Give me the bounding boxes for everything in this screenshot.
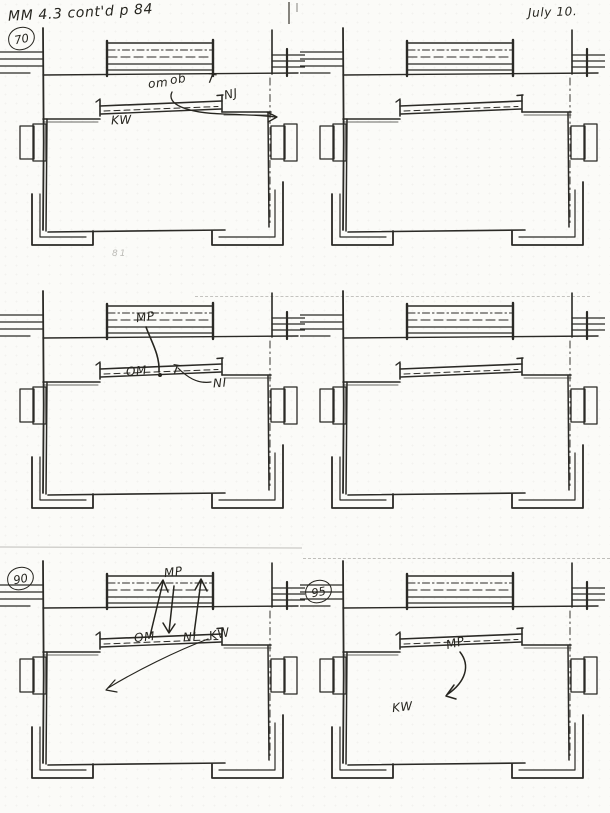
door-bracket-bottom-left [32, 457, 93, 508]
door-bracket-bottom-left [32, 727, 93, 778]
left-wall [0, 28, 44, 230]
platform-table [407, 573, 513, 609]
door-jamb-left [20, 387, 46, 424]
fold-mark [296, 3, 298, 12]
platform-table [107, 40, 213, 76]
door-bracket-bottom-right [212, 715, 283, 778]
character-label-om: OM [133, 630, 155, 644]
fold-mark [288, 2, 290, 24]
room-outline [43, 112, 271, 232]
left-wall [0, 561, 44, 763]
door-jamb-right [571, 124, 597, 161]
blocking-panel-1: 70 om ob T NJ KW [0, 22, 305, 280]
bench [96, 358, 223, 379]
bench [396, 358, 523, 379]
door-jamb-left [320, 657, 346, 694]
door-jamb-right [271, 387, 297, 424]
upstage-wall-line [43, 336, 298, 338]
door-jamb-left [20, 124, 46, 161]
character-label-t: T [171, 363, 181, 377]
floor-plan-sketch [0, 22, 305, 280]
floor-plan-sketch [0, 285, 305, 543]
door-bracket-bottom-left [332, 194, 393, 245]
scanned-blocking-page: { "page": { "description": "Scanned hand… [0, 0, 610, 800]
platform-table [107, 303, 213, 339]
left-wall [300, 291, 344, 493]
upstage-wall-line [343, 336, 598, 338]
character-label-mp: MP [135, 310, 155, 324]
blocking-panel-5: 90 MP OM NI KW [0, 555, 305, 813]
bench [96, 628, 223, 649]
upstage-wall-line [343, 73, 598, 75]
character-label-ni: NI [183, 631, 198, 644]
door-jamb-left [320, 387, 346, 424]
character-label-om: om [147, 76, 168, 90]
character-label-om: OM [126, 364, 148, 378]
floor-plan-sketch [300, 22, 605, 280]
door-jamb-left [20, 657, 46, 694]
sheet: MM 4.3 cont'd p 84 July 10. 81 [0, 0, 610, 800]
room-outline [343, 375, 571, 495]
door-bracket-bottom-right [212, 182, 283, 245]
door-bracket-bottom-right [212, 445, 283, 508]
door-jamb-right [271, 124, 297, 161]
upstage-wall-line [43, 606, 298, 608]
character-label-ni: NI [213, 377, 228, 390]
character-label-mp: MP [163, 565, 183, 579]
room-outline [343, 112, 571, 232]
left-wall [0, 291, 44, 493]
upstage-wall-line [343, 606, 598, 608]
character-label-nj: NJ [223, 87, 239, 102]
blocking-panel-6: 95 MP KW [300, 555, 605, 813]
room-outline [343, 645, 571, 765]
platform-table [107, 573, 213, 609]
door-bracket-bottom-right [512, 715, 583, 778]
bench [396, 95, 523, 116]
door-jamb-right [271, 657, 297, 694]
floor-plan-sketch [300, 285, 605, 543]
header-left-note: MM 4.3 cont'd p 84 [8, 2, 154, 24]
door-bracket-bottom-left [332, 727, 393, 778]
door-jamb-right [571, 657, 597, 694]
door-jamb-right [571, 387, 597, 424]
door-bracket-bottom-left [332, 457, 393, 508]
blocking-panel-4 [300, 285, 605, 543]
character-label-kw: KW [391, 700, 413, 714]
blocking-panel-2 [300, 22, 605, 280]
character-label-ob: ob [169, 72, 187, 86]
door-bracket-bottom-left [32, 194, 93, 245]
blocking-panel-3: MP OM T NI [0, 285, 305, 543]
platform-table [407, 303, 513, 339]
header-date-note: July 10. [528, 5, 578, 19]
room-outline [43, 645, 271, 765]
door-bracket-bottom-right [512, 445, 583, 508]
left-wall [300, 28, 344, 230]
door-jamb-left [320, 124, 346, 161]
floor-plan-sketch [300, 555, 605, 813]
row-separator [0, 546, 302, 548]
room-outline [43, 375, 271, 495]
door-bracket-bottom-right [512, 182, 583, 245]
floor-plan-sketch [0, 555, 305, 813]
platform-table [407, 40, 513, 76]
character-label-t: T [206, 72, 217, 86]
character-label-kw: KW [111, 113, 133, 126]
